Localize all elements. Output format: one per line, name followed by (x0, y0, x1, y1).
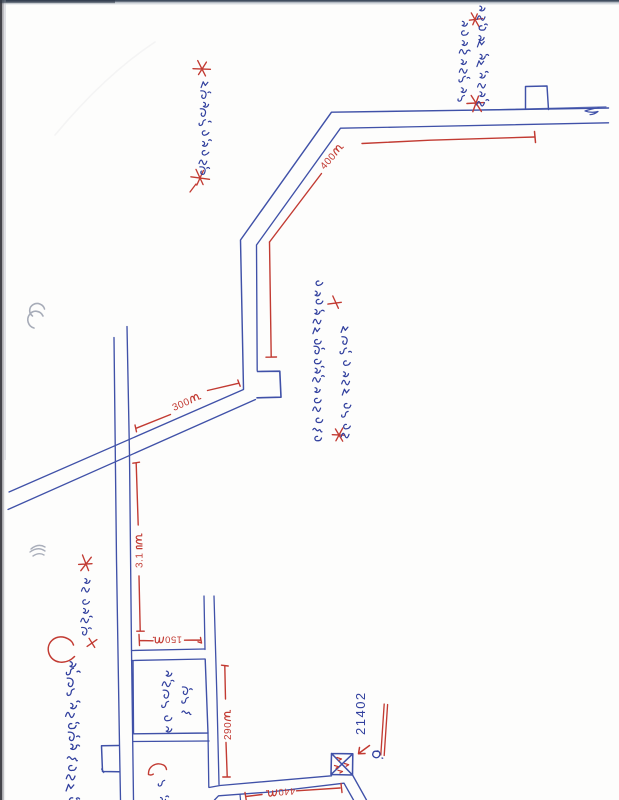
svg-text:150: 150 (165, 634, 182, 645)
svg-text:290: 290 (223, 722, 234, 740)
svg-text:21402: 21402 (353, 691, 368, 735)
svg-text:440: 440 (277, 785, 295, 797)
svg-text:3.1: 3.1 (135, 553, 146, 568)
